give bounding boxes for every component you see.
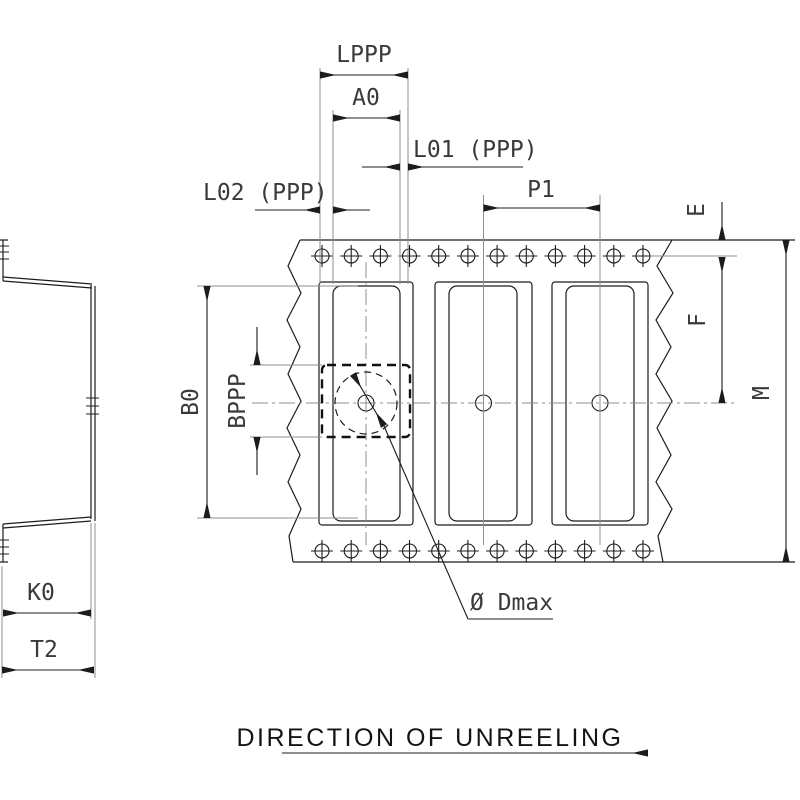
sprocket-hole xyxy=(486,245,508,267)
sprocket-hole xyxy=(311,540,333,562)
bppp-label: BPPP xyxy=(225,373,251,428)
side-lower-hole-ticks xyxy=(0,540,9,554)
dim-bppp: BPPP xyxy=(225,327,322,475)
t2-label: T2 xyxy=(30,637,58,663)
dim-k0: K0 xyxy=(3,580,91,613)
unreeling-direction: DIRECTION OF UNREELING xyxy=(237,724,648,753)
drawing-canvas: K0 T2 xyxy=(0,0,800,800)
technical-drawing: K0 T2 xyxy=(0,0,800,800)
sprocket-hole xyxy=(544,540,566,562)
dim-a0: A0 xyxy=(333,85,400,284)
pocket-3 xyxy=(552,195,648,545)
side-top-slope-inner xyxy=(3,281,92,288)
side-center-hole-ticks xyxy=(86,398,99,414)
dim-p1: P1 xyxy=(484,177,601,208)
l01-label: L01 (PPP) xyxy=(413,137,538,163)
sprocket-hole xyxy=(632,540,654,562)
sprocket-hole xyxy=(574,245,596,267)
sprocket-hole xyxy=(428,245,450,267)
sprocket-hole xyxy=(340,245,362,267)
sprocket-hole xyxy=(457,540,479,562)
sprocket-hole xyxy=(515,540,537,562)
k0-label: K0 xyxy=(27,580,55,606)
dim-m: M xyxy=(749,240,786,562)
sprocket-hole xyxy=(544,245,566,267)
sprocket-hole xyxy=(486,540,508,562)
sprocket-hole xyxy=(399,245,421,267)
a0-label: A0 xyxy=(352,85,380,111)
sprocket-hole xyxy=(340,540,362,562)
p1-label: P1 xyxy=(527,177,555,203)
dim-e: E xyxy=(650,202,737,256)
dim-l02: L02 (PPP) xyxy=(203,180,370,210)
l02-label: L02 (PPP) xyxy=(203,180,328,206)
side-upper-hole-ticks xyxy=(0,246,9,259)
b0-label: B0 xyxy=(178,388,204,416)
sprocket-hole xyxy=(574,540,596,562)
dim-t2: T2 xyxy=(2,637,94,670)
dmax-label: Ø Dmax xyxy=(470,590,553,616)
dim-f: F xyxy=(685,257,722,403)
tape-left-break-line xyxy=(287,240,301,562)
side-bottom-slope-inner xyxy=(3,517,91,524)
sprocket-hole xyxy=(399,540,421,562)
m-label: M xyxy=(749,386,775,400)
sprocket-hole xyxy=(311,245,333,267)
dmax-callout: Ø Dmax xyxy=(353,374,553,619)
direction-of-unreeling-label: DIRECTION OF UNREELING xyxy=(237,724,624,752)
sprocket-hole xyxy=(515,245,537,267)
lppp-label: LPPP xyxy=(336,42,391,68)
sprocket-hole xyxy=(457,245,479,267)
pocket-2 xyxy=(435,195,532,545)
dim-l01: L01 (PPP) xyxy=(362,137,538,167)
sprocket-hole xyxy=(603,245,625,267)
sprocket-hole xyxy=(369,540,391,562)
side-top-slope-outer xyxy=(3,277,92,284)
side-view: K0 T2 xyxy=(0,240,99,678)
f-label: F xyxy=(685,313,711,327)
e-label: E xyxy=(684,203,710,217)
side-bottom-slope-outer xyxy=(3,521,91,528)
sprocket-hole xyxy=(603,540,625,562)
sprocket-hole xyxy=(369,245,391,267)
dim-b0: B0 xyxy=(178,286,358,518)
tape-right-break-line xyxy=(656,240,673,562)
